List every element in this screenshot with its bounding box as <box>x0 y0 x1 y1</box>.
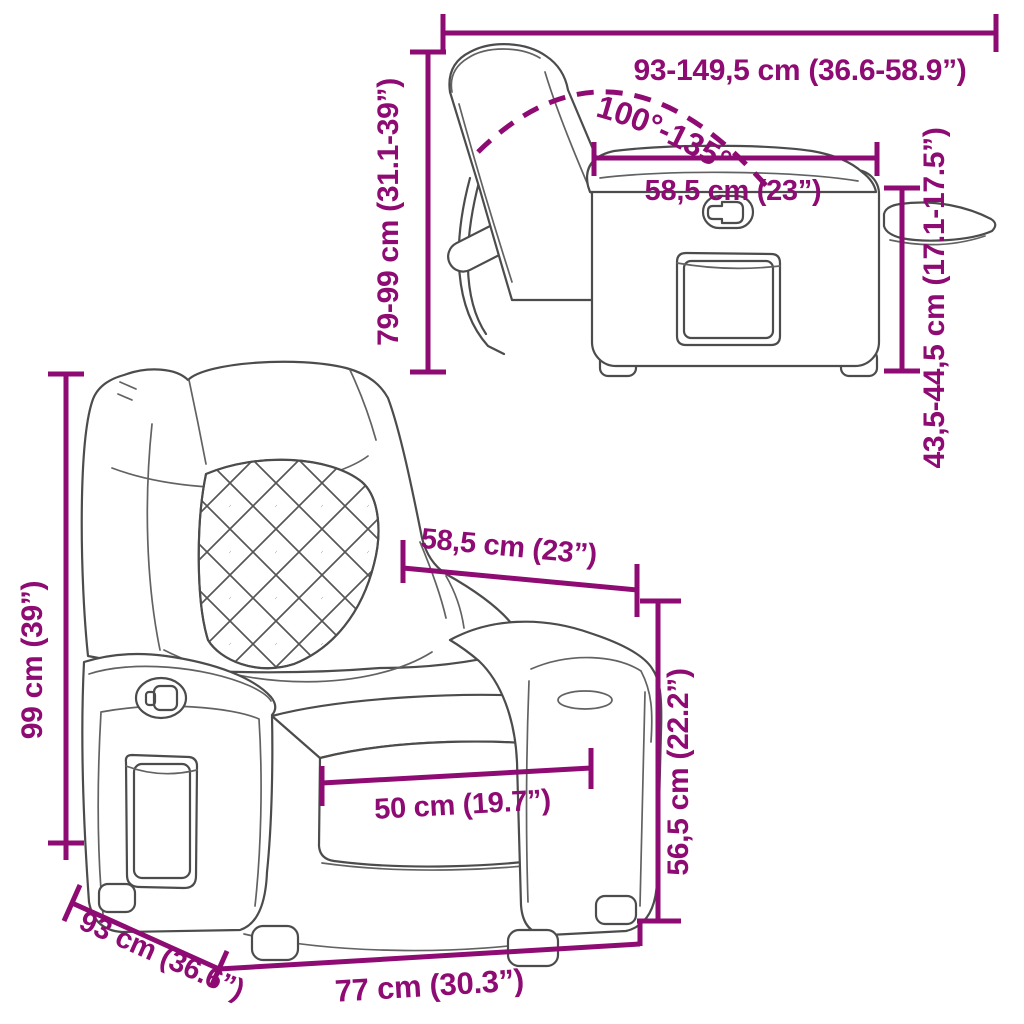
dim-side-arm-height: 43,5-44,5 cm (17.1-17.5”) <box>884 127 951 468</box>
dim-recline-length-label: 93-149,5 cm (36.6-58.9”) <box>633 54 966 87</box>
side-pocket <box>677 253 780 345</box>
front-foot-front-left <box>252 926 298 960</box>
front-foot-back-left <box>99 884 135 912</box>
dim-front-width-label: 77 cm (30.3”) <box>334 962 525 1008</box>
product-dimension-diagram: 93-149,5 cm (36.6-58.9”) 100°-135° 79-99… <box>0 0 1024 1024</box>
dim-side-height-label: 79-99 cm (31.1-39”) <box>372 78 405 346</box>
front-view-illustration <box>82 362 662 966</box>
front-foot-back-right <box>596 896 636 924</box>
dim-front-top-width-label: 58,5 cm (23”) <box>419 523 598 571</box>
dim-side-arm-height-label: 43,5-44,5 cm (17.1-17.5”) <box>918 127 951 468</box>
front-recliner-handle <box>136 678 186 718</box>
dim-front-height: 99 cm (39”) <box>16 374 84 860</box>
side-view-illustration <box>443 44 995 376</box>
dim-side-height: 79-99 cm (31.1-39”) <box>372 52 446 372</box>
dim-front-seat-height-label: 56,5 cm (22.2”) <box>662 668 695 875</box>
dim-front-height-label: 99 cm (39”) <box>16 581 49 739</box>
dim-side-seat-depth-label: 58,5 cm (23”) <box>645 175 822 207</box>
front-side-pocket <box>126 755 197 888</box>
